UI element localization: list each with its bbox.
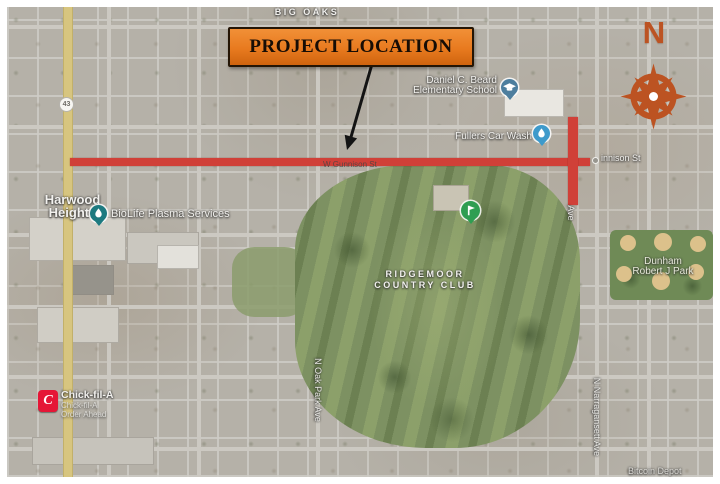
route-43-shield: 43 — [59, 97, 74, 112]
compass-north-letter: N — [635, 15, 673, 51]
ball-field — [654, 233, 672, 251]
street-label-narragansett-ave: N Narragansett Ave — [592, 365, 602, 469]
region-label-big-oaks: BIG OAKS — [257, 7, 357, 17]
building — [32, 437, 154, 465]
street-label-ave-partial: Ave — [566, 200, 576, 226]
chickfila-logo: C — [38, 390, 58, 412]
ball-field — [690, 236, 706, 252]
golf-club-label: RIDGEMOOR COUNTRY CLUB — [360, 269, 490, 291]
satellite-map: 43 BIG OAKS Daniel C. Beard Elementary S… — [7, 7, 713, 477]
poi-carwash-label: Fullers Car Wash — [427, 131, 532, 142]
droplet-glyph — [533, 125, 550, 142]
building — [157, 245, 199, 269]
school-icon — [501, 79, 518, 96]
car-wash-icon — [533, 125, 550, 142]
chickfila-logo-letter: C — [43, 393, 52, 408]
poi-chickfila-label: Chick-fil-A — [61, 389, 114, 401]
route-43-label: 43 — [63, 101, 71, 108]
compass-rose-icon — [615, 58, 691, 134]
highlight-line-cross-street — [568, 117, 578, 205]
chickfila-subline2: Order Ahead — [61, 410, 106, 419]
building — [29, 217, 126, 261]
town-label-harwood-heights: Harwood Heights — [20, 193, 125, 219]
map-dot — [592, 157, 599, 164]
street-label-oak-park-ave: N Oak Park Ave — [313, 342, 323, 438]
droplet-glyph — [90, 205, 107, 222]
dunham-line2: Robert J Park — [632, 266, 693, 277]
figure-frame: 43 BIG OAKS Daniel C. Beard Elementary S… — [0, 0, 720, 484]
street — [7, 125, 713, 129]
pointer-arrow — [345, 64, 372, 150]
ridgemoor-line1: RIDGEMOOR — [385, 269, 464, 279]
chickfila-subline1: Chick-fil-A — [61, 401, 97, 410]
street-label-gunnison-center: W Gunnison St — [323, 160, 377, 169]
banner-label: PROJECT LOCATION — [249, 36, 452, 58]
ball-field — [620, 235, 636, 251]
golf-course-icon — [461, 201, 480, 220]
golf-flag-glyph — [461, 201, 480, 220]
street-label-gunnison-right: innison St — [601, 153, 641, 163]
mortarboard-glyph — [501, 79, 518, 96]
project-location-banner: PROJECT LOCATION — [228, 27, 474, 67]
building — [67, 265, 114, 295]
poi-bitcoin-depot-label: Bitcoin Depot — [628, 466, 682, 476]
ridgemoor-line2: COUNTRY CLUB — [374, 280, 476, 290]
school-label-line2: Elementary School — [413, 85, 497, 96]
biolife-icon — [90, 205, 107, 222]
poi-biolife-label: BioLife Plasma Services — [111, 208, 230, 220]
park-label-dunham: Dunham Robert J Park — [613, 257, 713, 277]
building — [37, 307, 119, 343]
poi-school-label: Daniel C. Beard Elementary School — [382, 76, 497, 96]
